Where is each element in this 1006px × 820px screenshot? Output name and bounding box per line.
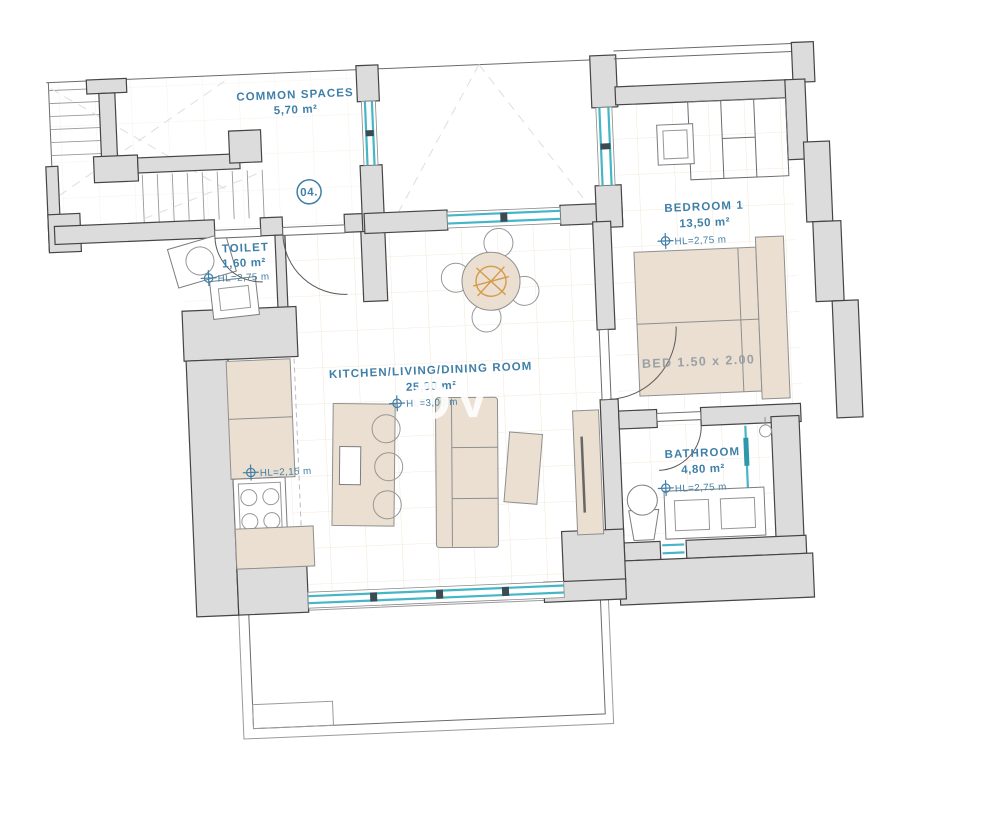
kitchen-island bbox=[332, 403, 395, 526]
label-bathroom-hl: HL=2,75 m bbox=[675, 482, 727, 495]
bed bbox=[634, 236, 791, 404]
label-toilet-name: TOILET bbox=[222, 242, 270, 256]
island-sink bbox=[339, 447, 360, 485]
label-toilet-area: 1,60 m² bbox=[222, 257, 266, 271]
label-bedroom-hl: HL=2,75 m bbox=[674, 234, 726, 247]
window-bedroom bbox=[596, 107, 615, 186]
label-toilet-hl: HL=2,75 m bbox=[217, 272, 269, 285]
label-bedroom-area: 13,50 m² bbox=[679, 216, 730, 230]
window-bathroom-small bbox=[662, 544, 684, 553]
window-courtyard-left bbox=[361, 101, 378, 166]
label-common-area: 5,70 m² bbox=[274, 103, 318, 117]
tv-unit bbox=[573, 410, 604, 535]
label-bathroom-area: 4,80 m² bbox=[681, 463, 725, 477]
watermark: OV bbox=[409, 370, 494, 431]
terrace bbox=[239, 598, 614, 739]
label-kitchen-hl: HL=2,15 m bbox=[260, 466, 312, 479]
floor-plan-canvas: COMMON SPACES 5,70 m² 04. TOILET 1,60 m²… bbox=[0, 0, 1006, 820]
vanity bbox=[664, 487, 766, 539]
kitchen-counter-corner bbox=[235, 526, 315, 569]
floor-plan-drawing: COMMON SPACES 5,70 m² 04. TOILET 1,60 m²… bbox=[0, 0, 1006, 820]
coffee-table bbox=[504, 432, 543, 504]
label-unit-number: 04. bbox=[300, 186, 318, 199]
